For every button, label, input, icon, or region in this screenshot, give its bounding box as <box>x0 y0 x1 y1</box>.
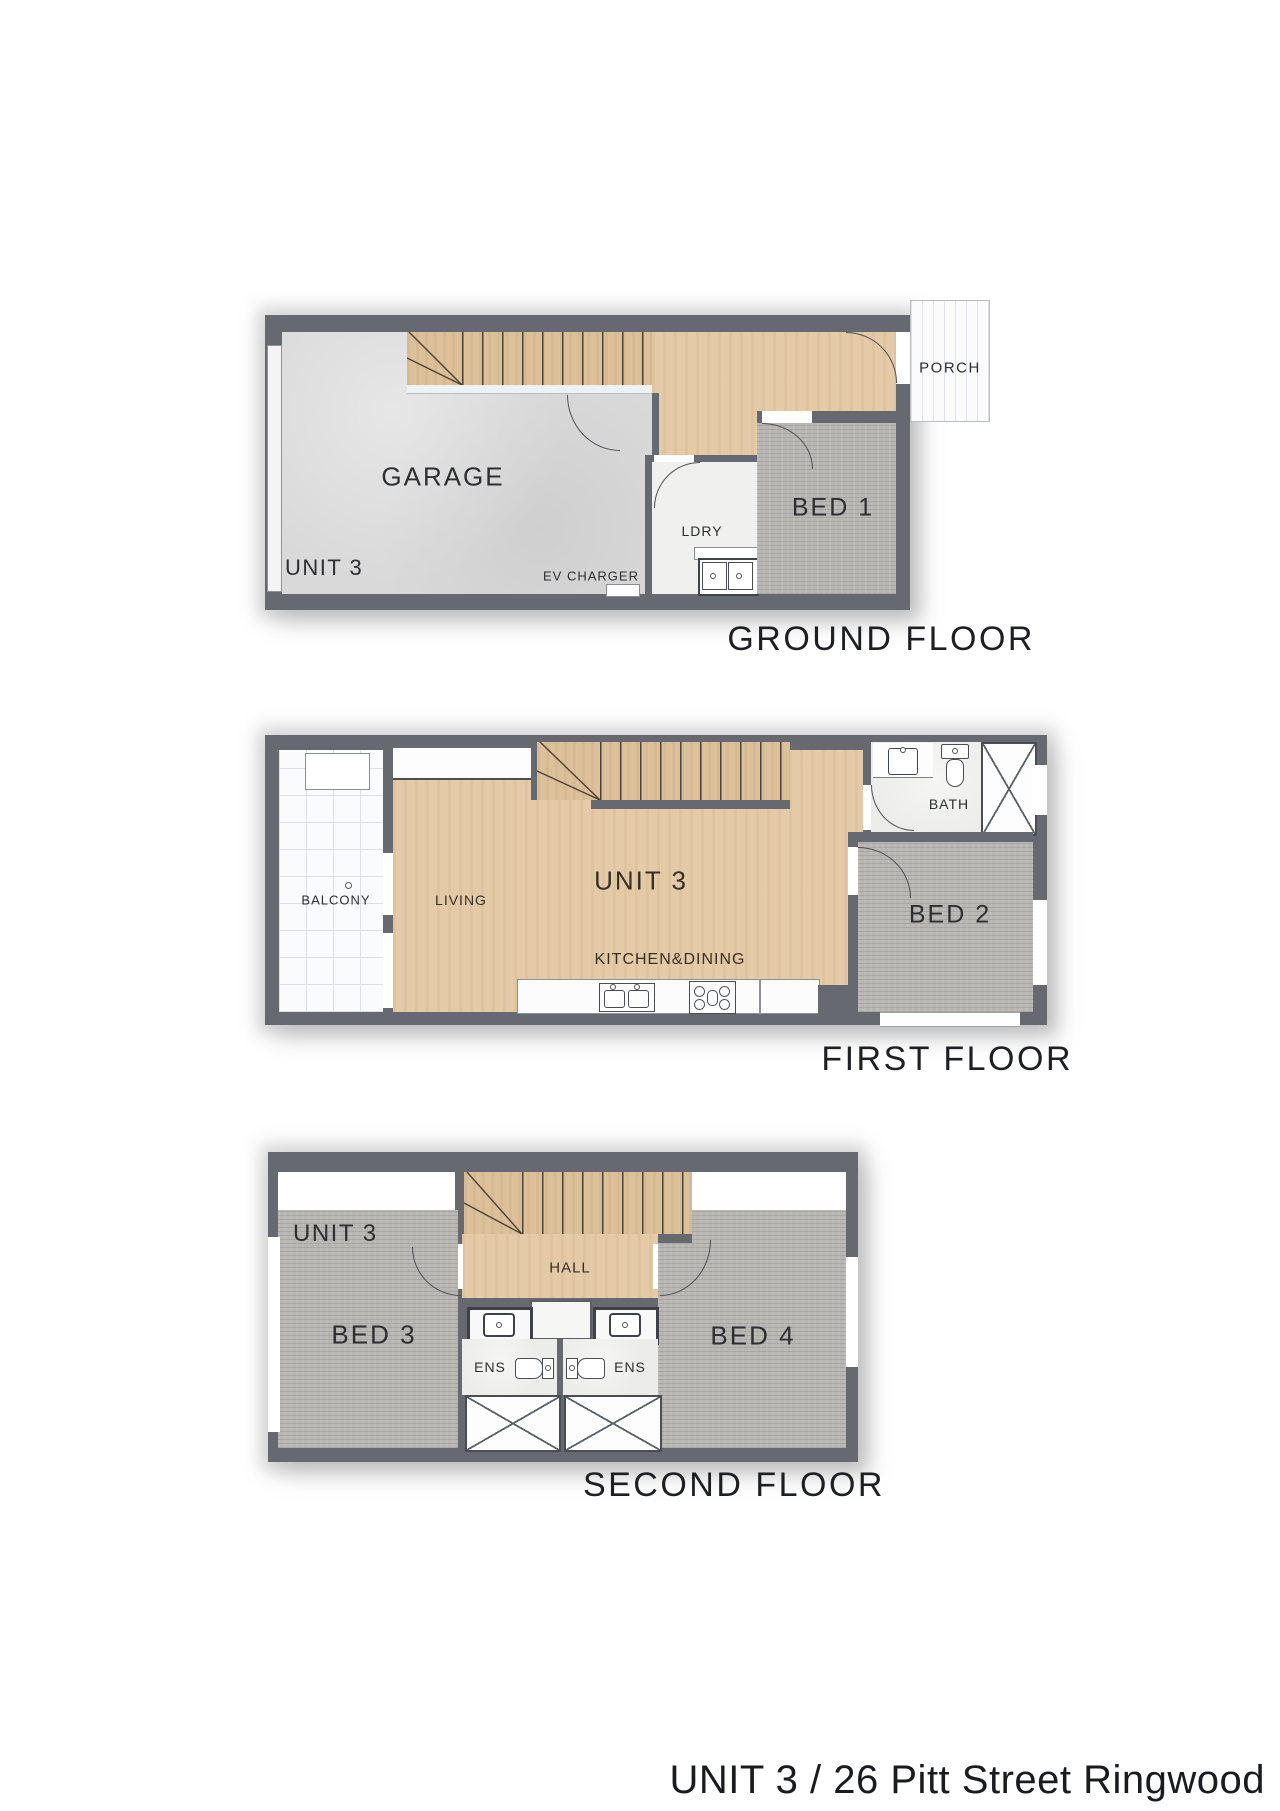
toilet <box>515 1358 543 1379</box>
stairs <box>407 332 680 385</box>
toilet-bowl <box>946 759 964 787</box>
window <box>268 1237 280 1432</box>
laundry-label: LDRY <box>681 523 722 539</box>
window <box>383 933 393 1008</box>
page-title: UNIT 3 / 26 Pitt Street Ringwood <box>669 1758 1265 1803</box>
first-floor-title: FIRST FLOOR <box>821 1040 1073 1079</box>
window <box>880 1012 1020 1027</box>
door-knob <box>345 882 352 889</box>
bed3-label: BED 3 <box>331 1320 416 1351</box>
wall-under-stairs <box>591 800 790 809</box>
wall-bath-bed2 <box>848 832 1033 842</box>
balcony-label: BALCONY <box>301 893 370 908</box>
stair-treads <box>600 742 790 800</box>
stove <box>689 981 736 1014</box>
ev-charger-label: EV CHARGER <box>543 569 639 584</box>
kitchen-dining-label: KITCHEN&DINING <box>595 951 746 969</box>
bed4-label: BED 4 <box>710 1321 795 1352</box>
stairs <box>464 1172 692 1234</box>
washing-machine <box>698 558 759 596</box>
toilet-cistern <box>542 1358 554 1379</box>
kitchen-bench <box>517 979 820 1014</box>
shower <box>465 1395 561 1452</box>
first-floor-plan: BATH BED 2 UNIT 3 LIVING KITCHEN&DINING … <box>265 735 1047 1025</box>
ground-floor-title: GROUND FLOOR <box>727 620 1035 659</box>
stair-winder <box>537 742 600 800</box>
stair-balustrade <box>407 385 680 394</box>
laundry-door-opening <box>654 455 694 462</box>
floor-plan-page: GARAGE UNIT 3 EV CHARGER LDRY BED 1 PORC… <box>0 0 1280 1811</box>
porch-label: PORCH <box>919 360 981 377</box>
bench-divider <box>759 980 761 1013</box>
linen-niche <box>530 1300 592 1340</box>
window <box>692 1172 846 1212</box>
toilet <box>941 744 969 759</box>
wall-garage-hall <box>652 393 659 455</box>
stair-treads <box>522 1172 692 1234</box>
garage-label: GARAGE <box>381 462 504 493</box>
living-label: LIVING <box>435 892 487 908</box>
second-floor-plan: UNIT 3 BED 3 BED 4 HALL ENS ENS <box>268 1152 858 1462</box>
toilet <box>577 1358 605 1379</box>
bed2-label: BED 2 <box>909 901 991 930</box>
bath-vanity <box>873 743 933 778</box>
stair-winder <box>407 332 462 385</box>
kitchen-sink <box>599 983 655 1012</box>
shower <box>564 1395 662 1452</box>
bed1-door-opening <box>762 411 812 423</box>
bed4-door-opening <box>653 1244 658 1289</box>
window <box>278 1172 455 1212</box>
shower <box>981 742 1037 836</box>
ens2-label: ENS <box>614 1359 646 1375</box>
stair-treads <box>462 332 680 385</box>
porch: PORCH <box>910 300 990 422</box>
ground-floor-plan: GARAGE UNIT 3 EV CHARGER LDRY BED 1 <box>265 315 910 610</box>
stair-winder <box>464 1172 522 1234</box>
joinery-unit <box>393 748 533 780</box>
bath-door-opening <box>863 785 871 830</box>
unit-label: UNIT 3 <box>285 555 363 581</box>
window <box>1033 765 1047 815</box>
hall-label: HALL <box>549 1260 591 1277</box>
window <box>846 1257 858 1367</box>
stairs <box>537 742 790 800</box>
second-floor-title: SECOND FLOOR <box>583 1466 885 1505</box>
ev-charger-unit <box>606 584 640 597</box>
entry-door-opening <box>896 332 910 384</box>
bath-label: BATH <box>929 796 969 812</box>
ens1-label: ENS <box>474 1359 506 1375</box>
window <box>383 853 393 915</box>
unit-label: UNIT 3 <box>293 1220 378 1248</box>
wall-laundry-left <box>645 455 652 594</box>
bed2-door-opening <box>848 847 858 895</box>
bed1-label: BED 1 <box>792 494 874 523</box>
garage-door <box>267 345 282 592</box>
window <box>1033 900 1047 985</box>
unit-label: UNIT 3 <box>594 866 688 897</box>
balcony-planter <box>305 753 370 790</box>
